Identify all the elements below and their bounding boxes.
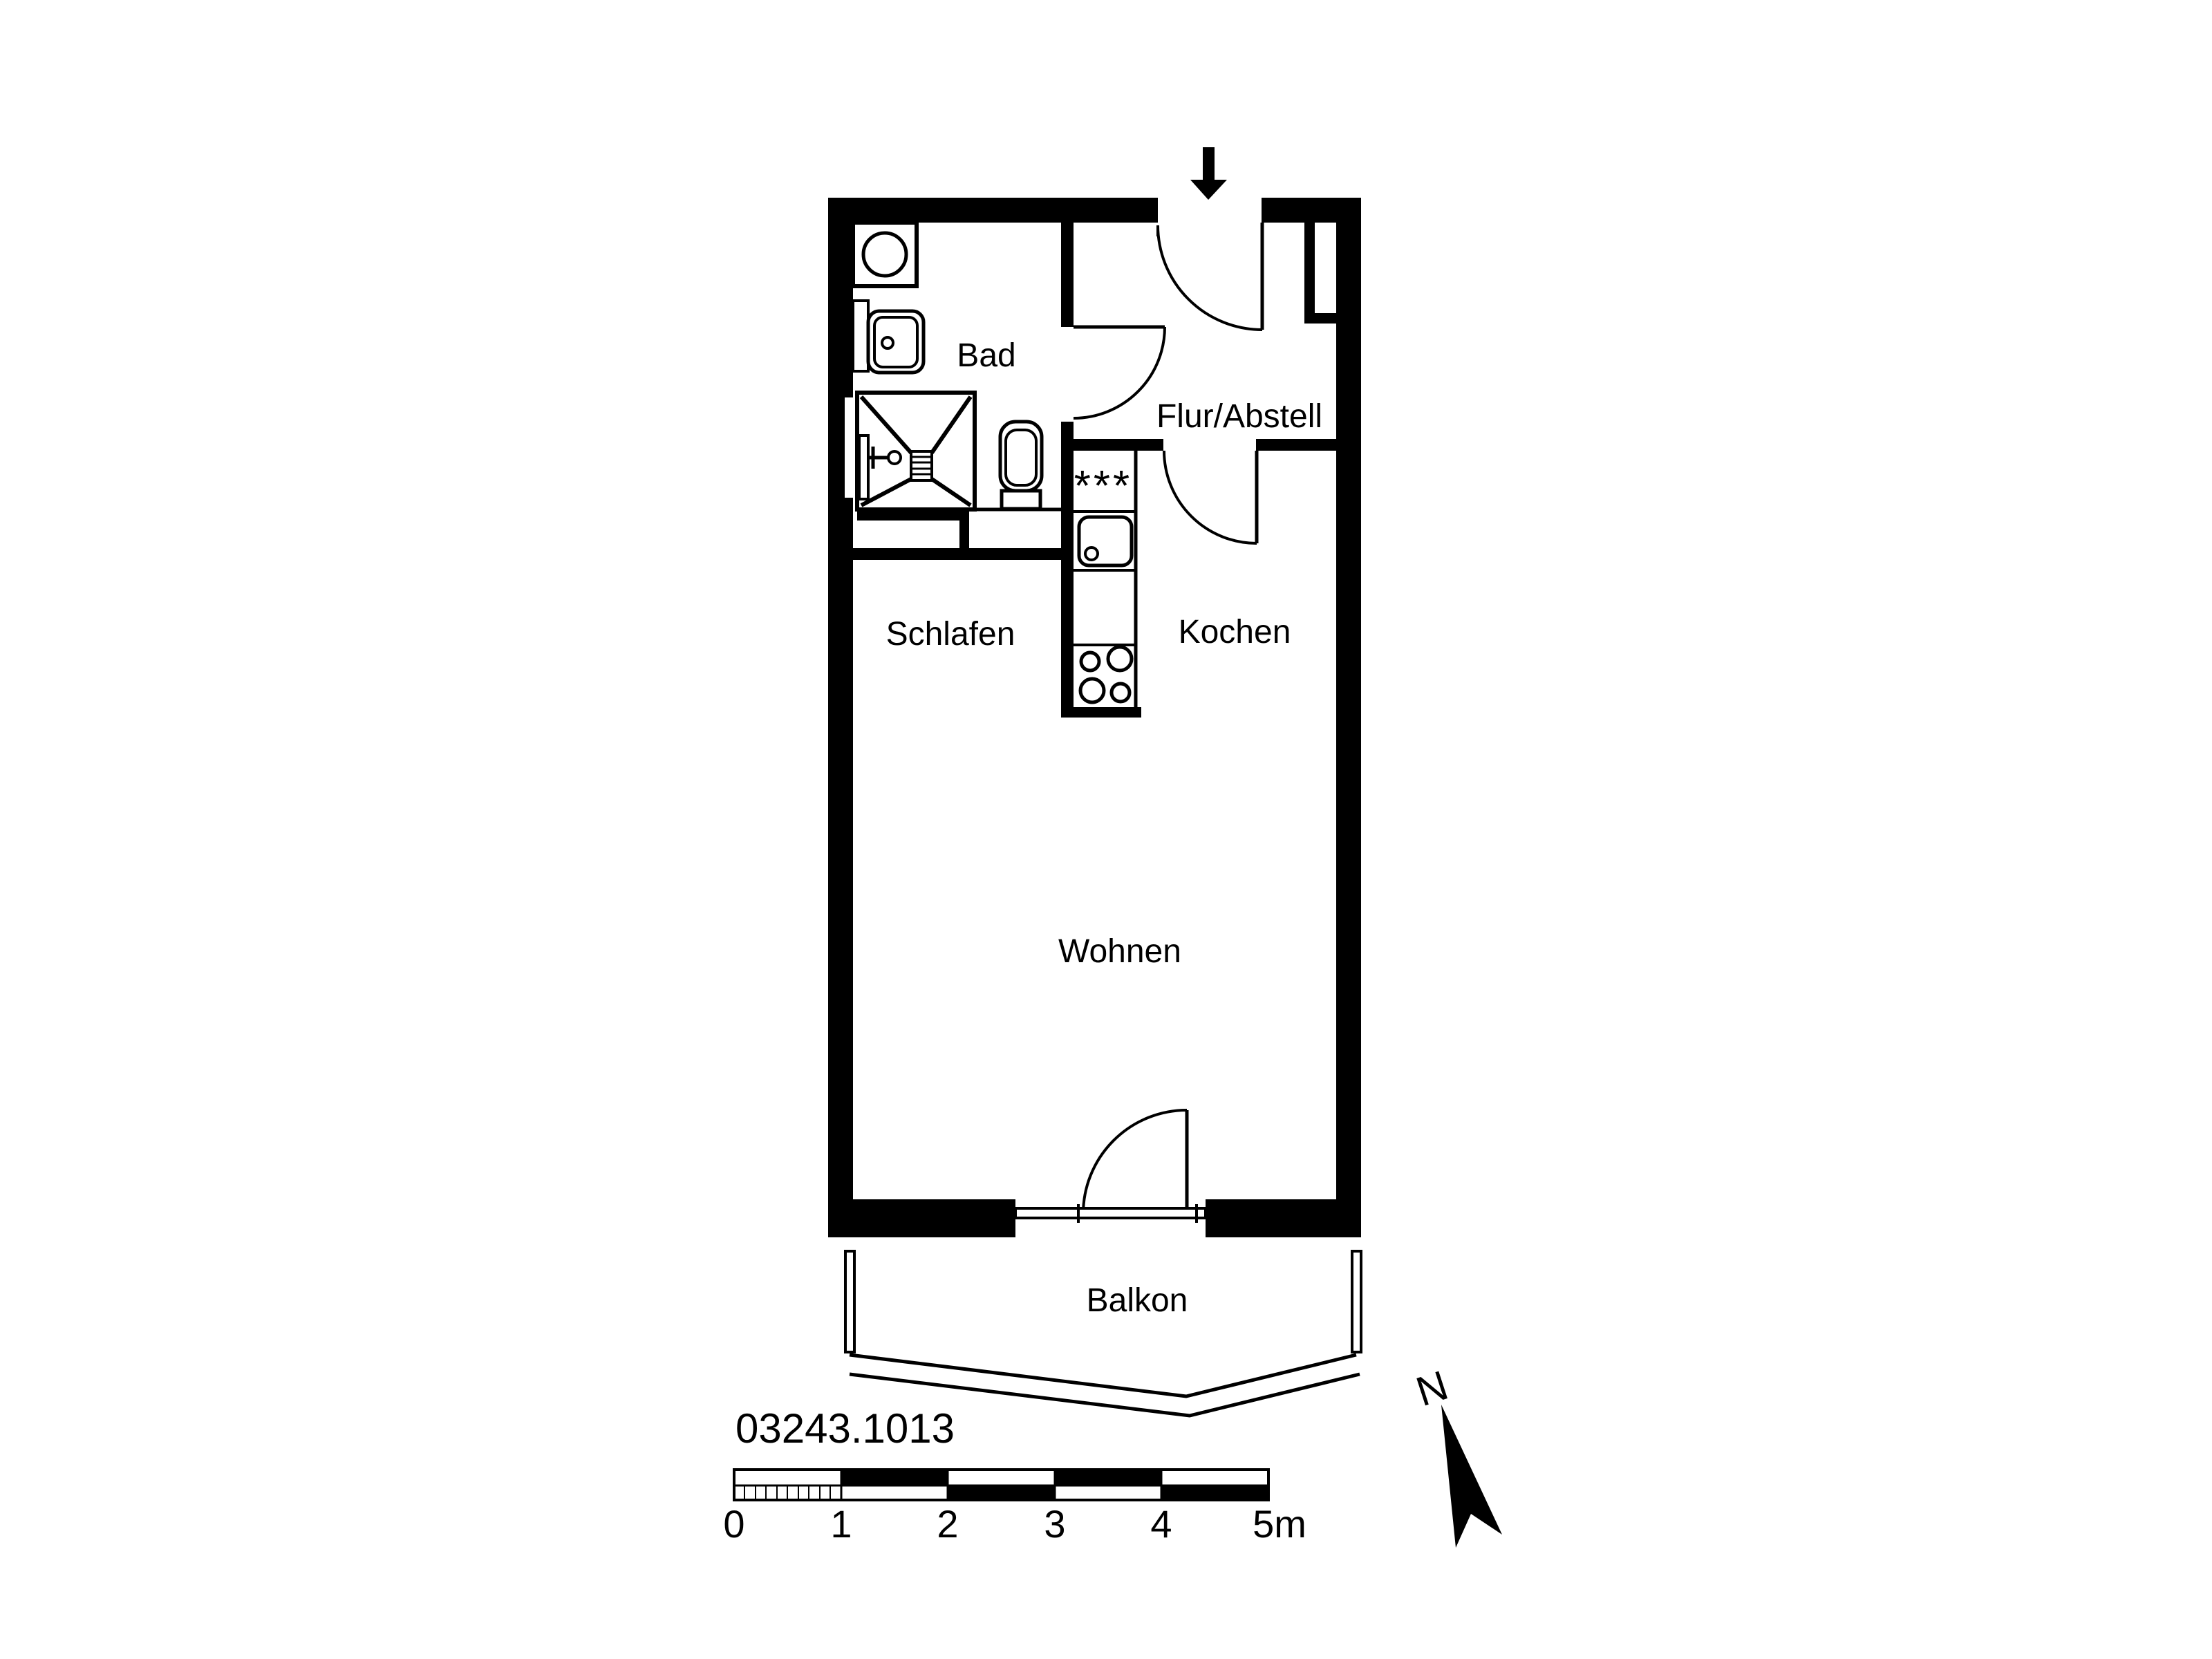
shower-drain-grate bbox=[911, 451, 932, 480]
label-kochen: Kochen bbox=[1179, 614, 1291, 650]
entrance-door-arc bbox=[1158, 225, 1262, 330]
scale-tick-label: 1 bbox=[830, 1502, 852, 1546]
scale-tick-label: 2 bbox=[937, 1502, 958, 1546]
bad-door-arc bbox=[1074, 327, 1165, 418]
washing-machine-icon bbox=[853, 223, 917, 286]
north-arrow-dart bbox=[1441, 1405, 1502, 1548]
scale-tick-label: 0 bbox=[723, 1502, 744, 1546]
balcony bbox=[845, 1251, 1361, 1416]
kitchen-sink-drain bbox=[1085, 547, 1098, 560]
scale-seg-black bbox=[841, 1470, 948, 1485]
shower-diag-tr bbox=[932, 397, 971, 453]
toilet-bowl-inner bbox=[1006, 430, 1036, 485]
balcony-door bbox=[1083, 1110, 1187, 1214]
wall-bottom-right bbox=[1206, 1199, 1361, 1237]
label-flur-abstell: Flur/Abstell bbox=[1156, 398, 1322, 435]
entrance-arrow-stem bbox=[1203, 147, 1215, 180]
label-wohnen: Wohnen bbox=[1058, 933, 1181, 970]
label-schlafen: Schlafen bbox=[886, 616, 1015, 653]
stove-burner bbox=[1081, 653, 1099, 671]
shaft-wall-left bbox=[1304, 223, 1315, 324]
stove-burner bbox=[1112, 684, 1130, 702]
toilet-tank bbox=[1002, 491, 1040, 509]
entrance-arrow-icon bbox=[1190, 147, 1227, 200]
kochen-door-arc bbox=[1164, 451, 1257, 543]
plan-number: 03243.1013 bbox=[735, 1405, 955, 1452]
bathroom-sink-icon bbox=[853, 301, 924, 373]
shower-niche-panel bbox=[859, 435, 868, 499]
wall-bad-door-stub bbox=[1061, 422, 1074, 439]
shaft-wall-bottom bbox=[1304, 313, 1336, 324]
balcony-rail-outer bbox=[850, 1355, 1356, 1396]
stove-burner bbox=[1108, 647, 1132, 671]
scale-tick-label: 4 bbox=[1150, 1502, 1172, 1546]
shower-wall-niche bbox=[845, 397, 854, 498]
wall-top-left bbox=[828, 198, 1158, 223]
washing-machine-drum bbox=[863, 233, 906, 276]
scale-tick-label: 3 bbox=[1044, 1502, 1065, 1546]
kitchen-sink-icon bbox=[1079, 517, 1132, 565]
kitchen-unit: *** bbox=[1074, 451, 1136, 707]
shower-diag-br bbox=[932, 479, 971, 505]
scale-seg-black bbox=[1055, 1470, 1161, 1485]
scale-seg-black bbox=[1161, 1485, 1268, 1500]
floor-plan-page: *** Bad Flur/Abstell Schlafen Kochen Woh… bbox=[0, 0, 2212, 1659]
wall-flur-kochen-left bbox=[1061, 439, 1163, 451]
scale-bar: 0 1 2 3 4 5m bbox=[723, 1470, 1306, 1546]
wall-bad-flur bbox=[1061, 223, 1074, 327]
balcony-door-arc bbox=[1083, 1110, 1187, 1214]
sink-drain bbox=[882, 337, 893, 348]
window-frame bbox=[1015, 1208, 1206, 1218]
wall-kitchen-cap bbox=[1061, 707, 1141, 718]
wall-kitchen-schlafen bbox=[1061, 451, 1074, 707]
scale-bar-tick-labels: 0 1 2 3 4 5m bbox=[723, 1502, 1306, 1546]
toilet-icon bbox=[1000, 422, 1042, 509]
shower-icon bbox=[857, 393, 975, 509]
window-band bbox=[1015, 1204, 1206, 1223]
entrance-door bbox=[1158, 223, 1262, 330]
scale-tick-label: 5m bbox=[1253, 1502, 1306, 1546]
doors bbox=[1074, 223, 1262, 1214]
kochen-door bbox=[1164, 451, 1257, 543]
wall-right bbox=[1336, 198, 1361, 1237]
label-bad: Bad bbox=[957, 337, 1015, 374]
shower-valve-knob bbox=[888, 451, 901, 464]
balcony-post-right bbox=[1352, 1251, 1361, 1352]
north-letter: N bbox=[1411, 1362, 1454, 1415]
stove-icon bbox=[1080, 647, 1132, 702]
wall-schlafen-north bbox=[853, 548, 1061, 560]
floor-plan-svg: *** Bad Flur/Abstell Schlafen Kochen Woh… bbox=[0, 0, 2212, 1659]
fridge-marking: *** bbox=[1074, 462, 1132, 510]
label-balkon: Balkon bbox=[1087, 1282, 1188, 1319]
entrance-arrow-head bbox=[1190, 180, 1227, 200]
wall-flur-kochen-right bbox=[1256, 439, 1336, 451]
wall-bad-south-connector bbox=[959, 509, 969, 548]
bad-door bbox=[1074, 327, 1165, 418]
scale-seg-black bbox=[948, 1485, 1055, 1500]
sink-counter bbox=[853, 301, 868, 371]
stove-burner bbox=[1080, 679, 1104, 702]
wall-left bbox=[828, 198, 853, 1237]
wall-bottom-left bbox=[828, 1199, 1015, 1237]
north-arrow-icon: N bbox=[1411, 1362, 1502, 1548]
balcony-post-left bbox=[845, 1251, 854, 1352]
